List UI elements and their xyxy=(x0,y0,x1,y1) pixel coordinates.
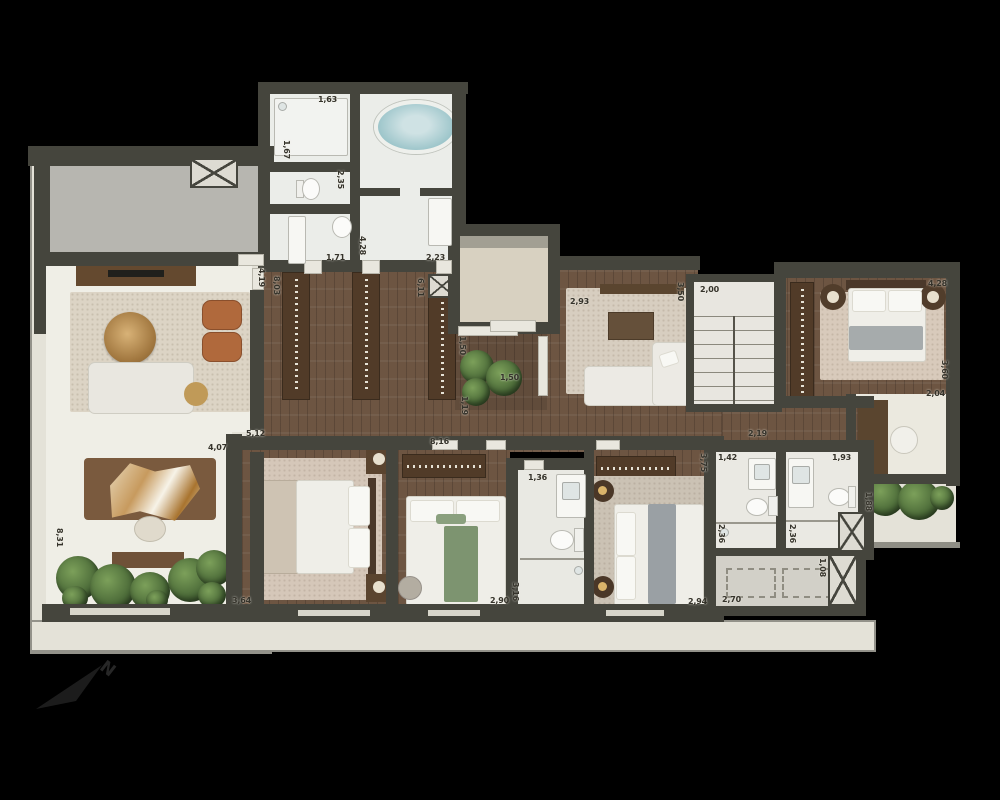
armchair xyxy=(202,332,242,362)
wall xyxy=(774,396,874,408)
dim-wc-depth: 2,35 xyxy=(336,170,344,189)
bed-blanket xyxy=(849,326,923,350)
pillow xyxy=(616,512,636,556)
dim-hallway-length: 8,16 xyxy=(430,438,449,446)
table-lamp xyxy=(927,291,939,303)
dim-bedroom2-width: 2,90 xyxy=(490,597,509,605)
dim-terrace-depth: 8,31 xyxy=(55,528,63,547)
dim-laundry-width: 2,70 xyxy=(722,596,741,604)
shower-glass xyxy=(786,520,838,522)
wardrobe-rail xyxy=(790,282,814,400)
dim-suite2-depth: 3,60 xyxy=(940,360,948,379)
shower-glass xyxy=(520,558,584,560)
double-bed xyxy=(296,480,354,574)
dim-tv-room-width: 2,93 xyxy=(570,298,589,306)
table-lamp xyxy=(373,581,385,593)
doorway xyxy=(486,440,506,450)
dim-bath-right-width: 1,93 xyxy=(832,454,851,462)
dim-terrace-dining-width: 4,07 xyxy=(208,444,227,452)
terrace-walkway xyxy=(30,620,876,652)
appliance-slot xyxy=(726,568,776,598)
dim-closet-hall-depth: 8,03 xyxy=(272,276,280,295)
wall-shelf xyxy=(600,284,684,294)
dim-bath-shower-depth: 1,67 xyxy=(282,140,290,159)
north-arrow-shape xyxy=(36,665,102,709)
shower-head xyxy=(574,566,583,575)
toilet xyxy=(746,498,768,516)
bed-foot-blanket xyxy=(262,480,298,574)
pillow xyxy=(888,290,922,312)
window xyxy=(298,610,370,616)
wall xyxy=(226,434,242,612)
table-lamp xyxy=(373,453,385,465)
toilet xyxy=(332,216,352,238)
wall xyxy=(226,436,724,450)
toilet-tank xyxy=(768,496,778,516)
toilet-tank xyxy=(848,486,856,508)
doorway xyxy=(524,460,544,470)
window xyxy=(428,610,480,616)
bathtub xyxy=(374,100,458,154)
dim-bedroom3-depth: 3,75 xyxy=(699,453,707,472)
candle-lamp xyxy=(598,486,607,495)
wall xyxy=(250,290,264,430)
wardrobe-rail xyxy=(352,272,380,400)
dim-stairs-passage: 2,19 xyxy=(748,430,767,438)
pillow xyxy=(348,486,370,526)
toilet xyxy=(302,178,320,200)
north-label: N xyxy=(96,657,120,682)
round-dining-table xyxy=(104,312,156,364)
candle-lamp xyxy=(598,582,607,591)
wall xyxy=(258,82,468,94)
dim-bath-suite-width: 2,23 xyxy=(426,254,445,262)
dim-bath-left-depth: 2,36 xyxy=(717,524,725,543)
duct-shaft xyxy=(838,512,866,552)
duct-shaft xyxy=(828,554,858,606)
wall xyxy=(250,452,264,612)
doorway xyxy=(362,260,380,274)
dim-side-terrace-depth: 1,88 xyxy=(864,492,872,511)
wall xyxy=(360,188,400,196)
table-lamp xyxy=(827,291,839,303)
wall xyxy=(34,260,46,334)
dim-suite2-width: 4,28 xyxy=(928,280,947,288)
wall xyxy=(774,278,786,404)
doorway xyxy=(436,260,452,274)
doorway xyxy=(596,440,620,450)
dim-closet-rail-depth: 6,11 xyxy=(416,278,424,297)
elevator-floor xyxy=(460,236,548,322)
wardrobe-rail xyxy=(402,454,486,478)
dim-bath-right-depth: 2,36 xyxy=(788,524,796,543)
dim-bath-mid-width: 1,36 xyxy=(528,474,547,482)
wardrobe-rail xyxy=(282,272,310,400)
wall xyxy=(386,444,398,612)
elevator-sill xyxy=(490,320,536,332)
dim-bath-suite-depth: 4,28 xyxy=(358,236,366,255)
stool xyxy=(134,516,166,542)
bed-runner xyxy=(648,504,676,604)
pillow xyxy=(348,528,370,568)
wall xyxy=(258,82,270,272)
dim-bath-shower-width: 1,63 xyxy=(318,96,337,104)
green-pillow xyxy=(436,514,466,524)
dim-bath-mid-depth: 3,16 xyxy=(511,582,519,601)
dim-patio-passage: 1,19 xyxy=(460,396,468,415)
desk-chair xyxy=(890,426,918,454)
dim-stairs-width: 2,00 xyxy=(700,286,719,294)
terrace-edge xyxy=(862,542,960,548)
tv-screen xyxy=(108,270,164,277)
bath-vanity xyxy=(428,198,452,246)
north-arrow: N xyxy=(30,645,125,720)
dim-bedroom3-width: 2,94 xyxy=(688,598,707,606)
pillow xyxy=(852,290,886,312)
sink-basin xyxy=(792,466,810,484)
green-throw xyxy=(444,526,478,602)
wall xyxy=(946,390,960,486)
dim-patio-width: 1,50 xyxy=(500,374,519,382)
patio-door xyxy=(538,336,548,396)
dim-patio-depth: 1,50 xyxy=(458,336,466,355)
floor-plan: 1,63 1,67 2,35 4,28 1,71 2,23 4,19 8,03 … xyxy=(0,0,1000,800)
wall xyxy=(420,188,452,196)
wall xyxy=(946,262,960,408)
elevator-track xyxy=(460,236,548,248)
dim-stairs-side-depth: 3,50 xyxy=(676,282,684,301)
dim-entry-side-depth: 4,19 xyxy=(257,268,265,287)
side-table xyxy=(184,382,208,406)
plant xyxy=(930,486,954,510)
wall xyxy=(506,458,590,470)
sofa xyxy=(88,362,194,414)
armchair xyxy=(202,300,242,330)
doorway xyxy=(304,260,322,274)
dim-master-width: 5,12 xyxy=(246,430,265,438)
wall xyxy=(774,262,960,278)
dim-bath-left-width: 1,42 xyxy=(718,454,737,462)
wall xyxy=(42,252,268,266)
sink-basin xyxy=(562,482,580,500)
sink-basin xyxy=(754,464,770,480)
stair-rail xyxy=(733,316,735,404)
entry-door xyxy=(190,158,238,188)
shower-head xyxy=(278,102,287,111)
toilet xyxy=(828,488,850,506)
wall xyxy=(270,204,350,214)
pouf xyxy=(398,576,422,600)
dim-study-width: 2,04 xyxy=(926,390,945,398)
pillow xyxy=(616,556,636,600)
bath-vanity xyxy=(288,216,306,264)
window xyxy=(70,608,170,615)
toilet-tank xyxy=(574,528,584,552)
toilet xyxy=(550,530,574,550)
dim-terrace-walk-width: 3,64 xyxy=(232,597,251,605)
window xyxy=(606,610,664,616)
wall xyxy=(560,256,700,270)
dim-laundry-shaft: 1,08 xyxy=(818,558,826,577)
doorway xyxy=(238,254,264,266)
dim-bath-vanity-width: 1,71 xyxy=(326,254,345,262)
media-cabinet xyxy=(608,312,654,340)
wall xyxy=(34,158,50,260)
